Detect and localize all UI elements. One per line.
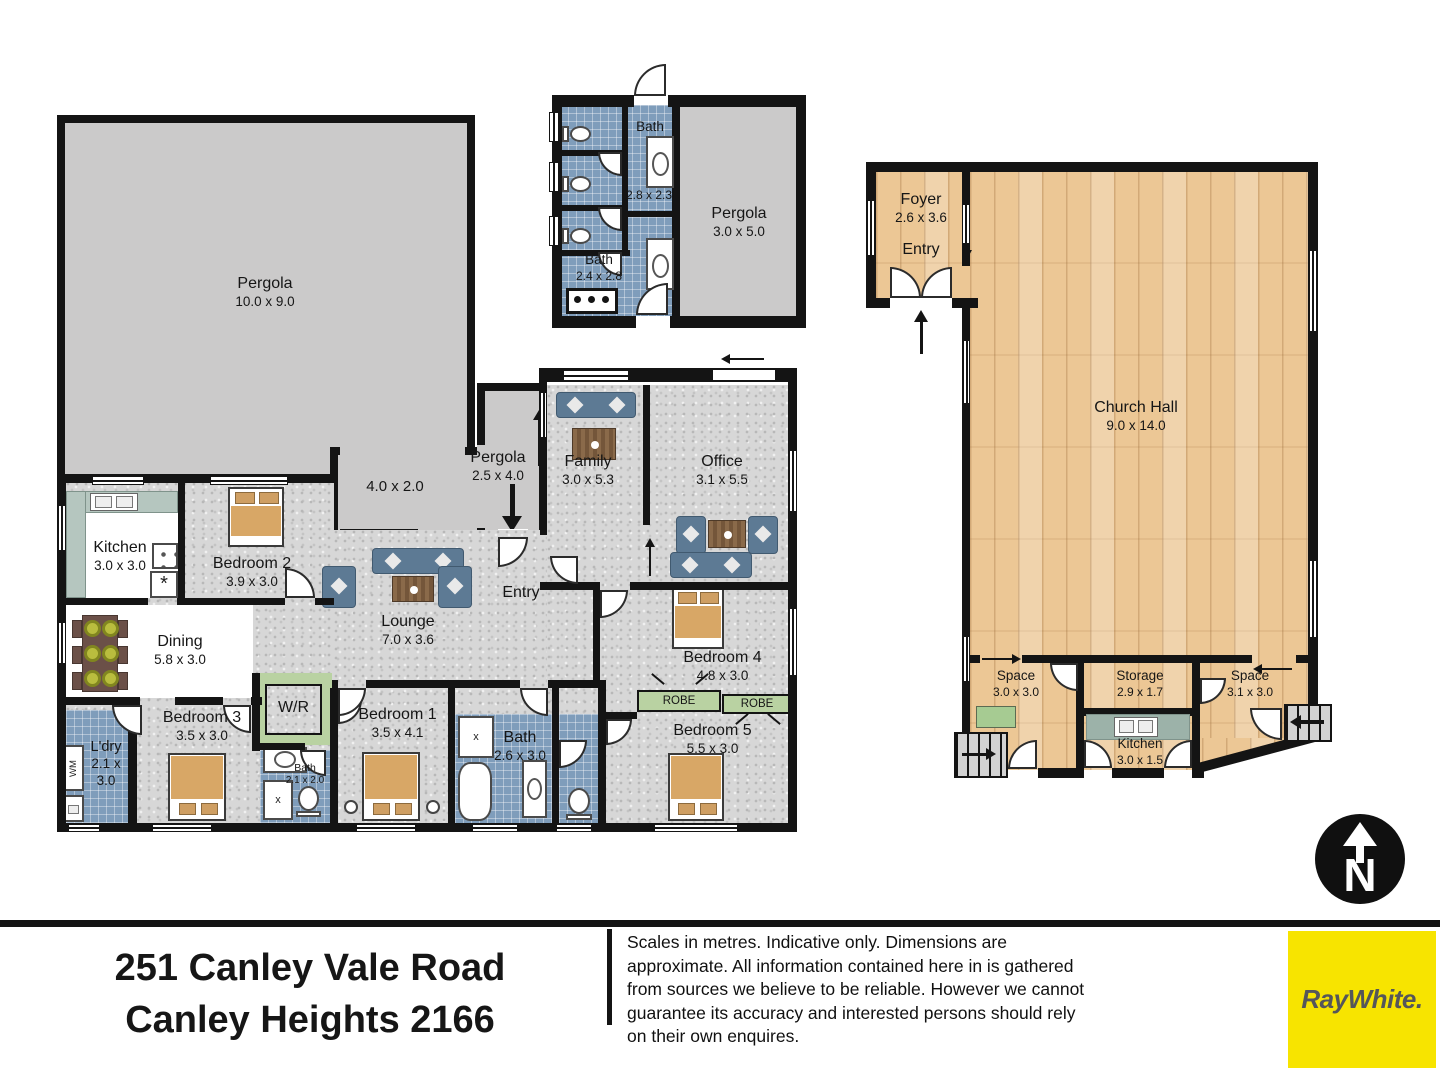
window: [549, 216, 559, 246]
porch-slider: [713, 368, 775, 382]
wall: [628, 211, 674, 217]
toilet: [570, 176, 591, 192]
bed: [672, 587, 724, 649]
toilet: [562, 176, 569, 192]
basin: [652, 254, 669, 278]
wall: [1112, 768, 1164, 778]
foyer-dims: 2.6 x 3.6: [884, 210, 958, 227]
pergola-large-dims: 10.0 x 9.0: [180, 294, 350, 311]
pillow: [259, 492, 279, 504]
pillow: [395, 803, 412, 815]
toilet: [566, 814, 592, 820]
disclaimer-text: Scales in metres. Indicative only. Dimen…: [627, 931, 1097, 1049]
wall: [788, 368, 797, 832]
blanket: [675, 606, 721, 638]
church-hall-floor: [970, 172, 1310, 738]
wall: [366, 680, 520, 688]
dishwasher: *: [150, 571, 178, 598]
kitchen-dims: 3.0 x 3.0: [78, 558, 162, 575]
bedside-table: [426, 800, 440, 814]
place-setting: [84, 670, 101, 687]
coffee-table: [708, 520, 746, 548]
dining-chair: [118, 620, 128, 638]
wall: [66, 598, 148, 605]
wall: [1192, 708, 1200, 770]
bath-main-label: Bath 2.6 x 3.0: [478, 728, 562, 765]
sink-bowl: [1119, 720, 1134, 733]
basin: [652, 152, 669, 176]
window: [789, 450, 797, 512]
tub-bowl: [68, 805, 79, 814]
foyer-name: Foyer: [884, 190, 958, 210]
pergola-down-arrow: [510, 484, 515, 518]
laundry-dims: 2.1 x 3.0: [84, 756, 128, 790]
bath-small-dims: 2.1 x 2.0: [282, 775, 328, 788]
window: [963, 636, 970, 682]
bedroom2-name: Bedroom 2: [197, 554, 307, 574]
wm-label: WM: [67, 760, 78, 777]
church-hall-dims: 9.0 x 14.0: [1080, 418, 1192, 435]
cushion: [447, 578, 464, 595]
space-left-arrow-head: [1012, 654, 1021, 664]
pillow: [373, 803, 390, 815]
toilet: [296, 811, 321, 817]
sink-bowl: [116, 496, 133, 508]
compass-arrow: [1343, 822, 1377, 846]
storage-dims: 2.9 x 1.7: [1102, 685, 1178, 700]
window: [1309, 560, 1317, 638]
wall: [1038, 768, 1084, 778]
church-hall-label: Church Hall 9.0 x 14.0: [1080, 398, 1192, 435]
space-left-dims: 3.0 x 3.0: [980, 685, 1052, 700]
wall: [330, 688, 338, 823]
wc-bath-top-dims-label: 2.8 x 2.3: [618, 188, 680, 203]
cushion: [724, 557, 741, 574]
entry-name: Entry: [492, 583, 550, 603]
footer-vertical-divider: [607, 929, 612, 1025]
hall-up-arrow: [649, 546, 651, 576]
pillow: [179, 803, 196, 815]
dining-chair: [72, 672, 82, 690]
wall: [866, 298, 890, 308]
toilet: [298, 786, 319, 811]
stairs-arrow-head: [986, 748, 996, 760]
wall: [866, 162, 1318, 172]
blanket: [231, 506, 281, 536]
space-left-arrow: [982, 658, 1012, 660]
wr-label: W/R: [265, 698, 322, 718]
window: [92, 476, 144, 485]
pergola-extension-label: 4.0 x 2.0: [345, 478, 445, 497]
armchair: [438, 566, 472, 608]
space-bench: [976, 706, 1016, 728]
sofa: [670, 552, 752, 578]
bedroom3-name: Bedroom 3: [152, 708, 252, 728]
wall: [970, 655, 980, 663]
pillow: [201, 803, 218, 815]
hall-up-arrow-head: [645, 538, 655, 547]
robe-b-label: ROBE: [741, 698, 774, 710]
wc-pergola-name: Pergola: [686, 204, 792, 224]
window: [356, 824, 416, 832]
entry-up-arrow-head: [914, 310, 928, 322]
foyer-entry-label: Entry: [884, 240, 958, 260]
wc-bath-top-name: Bath: [624, 119, 676, 136]
place-setting: [102, 670, 119, 687]
wall: [593, 582, 600, 688]
coffee-table: [392, 576, 434, 602]
bedroom1-name: Bedroom 1: [350, 705, 445, 725]
pillow: [235, 492, 255, 504]
wall: [1076, 708, 1084, 770]
window: [549, 162, 559, 192]
basin: [527, 778, 542, 800]
wall: [178, 483, 185, 600]
window: [867, 200, 875, 256]
cushion: [567, 397, 584, 414]
blanket: [671, 756, 721, 799]
pillow: [700, 803, 717, 815]
pergola-side-dims: 2.5 x 4.0: [442, 468, 554, 485]
dining-label: Dining 5.8 x 3.0: [138, 632, 222, 669]
toilet: [570, 228, 591, 244]
window: [68, 824, 100, 832]
wc-bath-low-dims: 2.4 x 2.8: [568, 269, 630, 284]
bedroom4-label: Bedroom 4 4.8 x 3.0: [670, 648, 775, 685]
place-setting: [102, 620, 119, 637]
place-setting: [84, 620, 101, 637]
bedroom2-label: Bedroom 2 3.9 x 3.0: [197, 554, 307, 591]
dining-chair: [118, 646, 128, 664]
wall: [598, 688, 606, 823]
wc-pergola-dims: 3.0 x 5.0: [686, 224, 792, 241]
family-label: Family 3.0 x 5.3: [554, 452, 622, 489]
wc-bath-top-dims: 2.8 x 2.3: [618, 188, 680, 203]
toilet: [562, 228, 569, 244]
window: [654, 824, 738, 832]
bath-small-name: Bath: [282, 762, 328, 775]
bedroom1-dims: 3.5 x 4.1: [350, 725, 445, 742]
bed: [168, 753, 226, 821]
cushion: [683, 526, 700, 543]
pergola-large-name: Pergola: [180, 274, 350, 294]
shower-mark: x: [275, 794, 281, 806]
pillow: [678, 592, 697, 604]
robe-b: ROBE: [722, 694, 792, 714]
table-decor: [724, 531, 732, 539]
kitchen-label: Kitchen 3.0 x 3.0: [78, 538, 162, 575]
bed: [362, 752, 420, 821]
wall: [1308, 162, 1318, 740]
porch-arrow: [730, 358, 764, 360]
bedroom4-dims: 4.8 x 3.0: [670, 668, 775, 685]
bedroom1-label: Bedroom 1 3.5 x 4.1: [350, 705, 445, 742]
cushion: [755, 526, 772, 543]
foyer-door-opening: [890, 298, 952, 308]
wall: [175, 697, 223, 705]
wc-pergola-label: Pergola 3.0 x 5.0: [686, 204, 792, 241]
office-label: Office 3.1 x 5.5: [688, 452, 756, 489]
bedroom4-name: Bedroom 4: [670, 648, 775, 668]
window: [58, 505, 66, 551]
armchair: [676, 516, 706, 554]
wall: [1296, 655, 1310, 663]
stairs-arrow: [962, 753, 988, 756]
storage-name: Storage: [1102, 668, 1178, 685]
wr-name: W/R: [265, 698, 322, 718]
bedside-table: [344, 800, 358, 814]
floorplan-page: Pergola 10.0 x 9.0 4.0 x 2.0 Pergola 2.5…: [0, 0, 1440, 1080]
space-left-label: Space 3.0 x 3.0: [980, 668, 1052, 700]
laundry-label: L'dry 2.1 x 3.0: [84, 738, 128, 790]
wall: [670, 316, 806, 328]
porch-arrow-head: [721, 354, 730, 364]
wall: [1192, 655, 1200, 716]
window: [963, 340, 970, 404]
bedroom5-label: Bedroom 5 5.5 x 3.0: [660, 721, 765, 758]
dining-chair: [72, 620, 82, 638]
address-block: 251 Canley Vale Road Canley Heights 2166: [30, 942, 590, 1046]
wall: [775, 368, 797, 382]
storage-label: Storage 2.9 x 1.7: [1102, 668, 1178, 700]
toilet: [562, 126, 569, 142]
window: [549, 112, 559, 142]
toilet: [570, 126, 591, 142]
cushion: [609, 397, 626, 414]
place-setting: [102, 645, 119, 662]
foyer-down-arrow-head: [962, 250, 972, 259]
dining-name: Dining: [138, 632, 222, 652]
bathtub: [458, 762, 492, 821]
dining-chair: [72, 646, 82, 664]
cushion: [331, 578, 348, 595]
sink-bowl: [95, 496, 112, 508]
office-dims: 3.1 x 5.5: [688, 472, 756, 489]
bath-main-dims: 2.6 x 3.0: [478, 748, 562, 765]
window: [962, 204, 970, 244]
pillow: [700, 592, 719, 604]
bath-main-name: Bath: [478, 728, 562, 748]
bedroom3-dims: 3.5 x 3.0: [152, 728, 252, 745]
wall: [1022, 655, 1252, 663]
lounge-label: Lounge 7.0 x 3.6: [366, 612, 450, 649]
raywhite-logo-text: RayWhite.: [1301, 984, 1422, 1015]
window: [556, 824, 592, 832]
robe-a: ROBE: [637, 690, 721, 712]
wall: [606, 712, 637, 719]
bed: [668, 753, 724, 821]
lounge-dims: 7.0 x 3.6: [366, 632, 450, 649]
wall: [796, 95, 806, 328]
stairs-left-arrow-head: [1290, 715, 1301, 729]
church-hall-name: Church Hall: [1080, 398, 1192, 418]
window: [789, 608, 797, 676]
stairs-left-arrow: [1300, 720, 1324, 724]
family-name: Family: [554, 452, 622, 472]
window: [563, 370, 629, 381]
bath-small-label: Bath 2.1 x 2.0: [282, 762, 328, 788]
footer-divider-line: [0, 920, 1440, 927]
space-left-name: Space: [980, 668, 1052, 685]
address-line2: Canley Heights 2166: [30, 994, 590, 1046]
office-name: Office: [688, 452, 756, 472]
wc-bath-low-name: Bath: [568, 252, 630, 269]
blanket: [171, 756, 223, 799]
wall: [315, 598, 334, 605]
wc-bath-top-label: Bath: [624, 119, 676, 136]
pillow: [678, 803, 695, 815]
bedroom3-label: Bedroom 3 3.5 x 3.0: [152, 708, 252, 745]
foyer-entry: Entry: [884, 240, 958, 260]
wall: [177, 598, 285, 605]
wall: [630, 582, 797, 590]
pergola-large-label: Pergola 10.0 x 9.0: [180, 274, 350, 311]
blanket: [365, 755, 417, 799]
wall: [448, 688, 455, 823]
church-kitchen-label: Kitchen 3.0 x 1.5: [1102, 736, 1178, 768]
wall: [552, 316, 636, 328]
space-right-dims: 3.1 x 3.0: [1212, 685, 1288, 700]
dining-chair: [118, 672, 128, 690]
family-dims: 3.0 x 5.3: [554, 472, 622, 489]
wall: [332, 680, 338, 688]
wall: [252, 673, 260, 751]
window: [1309, 250, 1317, 332]
kitchen-name: Kitchen: [78, 538, 162, 558]
entry-up-arrow: [920, 320, 923, 354]
cushion: [682, 557, 699, 574]
armchair: [748, 516, 778, 554]
wall: [668, 95, 806, 107]
wc-bath-low-label: Bath 2.4 x 2.8: [568, 252, 630, 284]
address-line1: 251 Canley Vale Road: [30, 942, 590, 994]
window: [58, 622, 66, 664]
lounge-name: Lounge: [366, 612, 450, 632]
church-kitchen-dims: 3.0 x 1.5: [1102, 753, 1178, 768]
sofa: [556, 392, 636, 418]
pergola-extension-dims: 4.0 x 2.0: [345, 478, 445, 497]
window: [152, 824, 212, 832]
porch-dot: [574, 296, 581, 303]
bedroom2-dims: 3.9 x 3.0: [197, 574, 307, 591]
space-right-label: Space 3.1 x 3.0: [1212, 668, 1288, 700]
porch-dot: [602, 296, 609, 303]
window: [540, 392, 547, 438]
porch-dot: [588, 296, 595, 303]
bedroom5-name: Bedroom 5: [660, 721, 765, 741]
dishwasher-mark: *: [160, 573, 168, 596]
wall: [962, 172, 970, 204]
wall: [252, 743, 305, 750]
window: [210, 476, 288, 485]
raywhite-logo: RayWhite.: [1288, 931, 1436, 1068]
foyer-label: Foyer 2.6 x 3.6: [884, 190, 958, 227]
table-decor: [410, 586, 418, 594]
laundry-name: L'dry: [84, 738, 128, 756]
compass-letter: N: [1315, 848, 1405, 902]
church-kitchen-name: Kitchen: [1102, 736, 1178, 753]
place-setting: [84, 645, 101, 662]
robe-a-label: ROBE: [663, 695, 696, 707]
north-compass-icon: N: [1315, 814, 1405, 904]
door-arc: [634, 64, 666, 96]
entry-label: Entry: [492, 583, 550, 603]
window: [472, 824, 518, 832]
toilet: [568, 788, 590, 814]
table-decor: [591, 441, 599, 449]
cushion: [385, 553, 402, 570]
sink-bowl: [1138, 720, 1153, 733]
wall: [643, 385, 650, 525]
bedroom5-dims: 5.5 x 3.0: [660, 741, 765, 758]
space-right-name: Space: [1212, 668, 1288, 685]
bed: [228, 487, 284, 547]
dining-dims: 5.8 x 3.0: [138, 652, 222, 669]
